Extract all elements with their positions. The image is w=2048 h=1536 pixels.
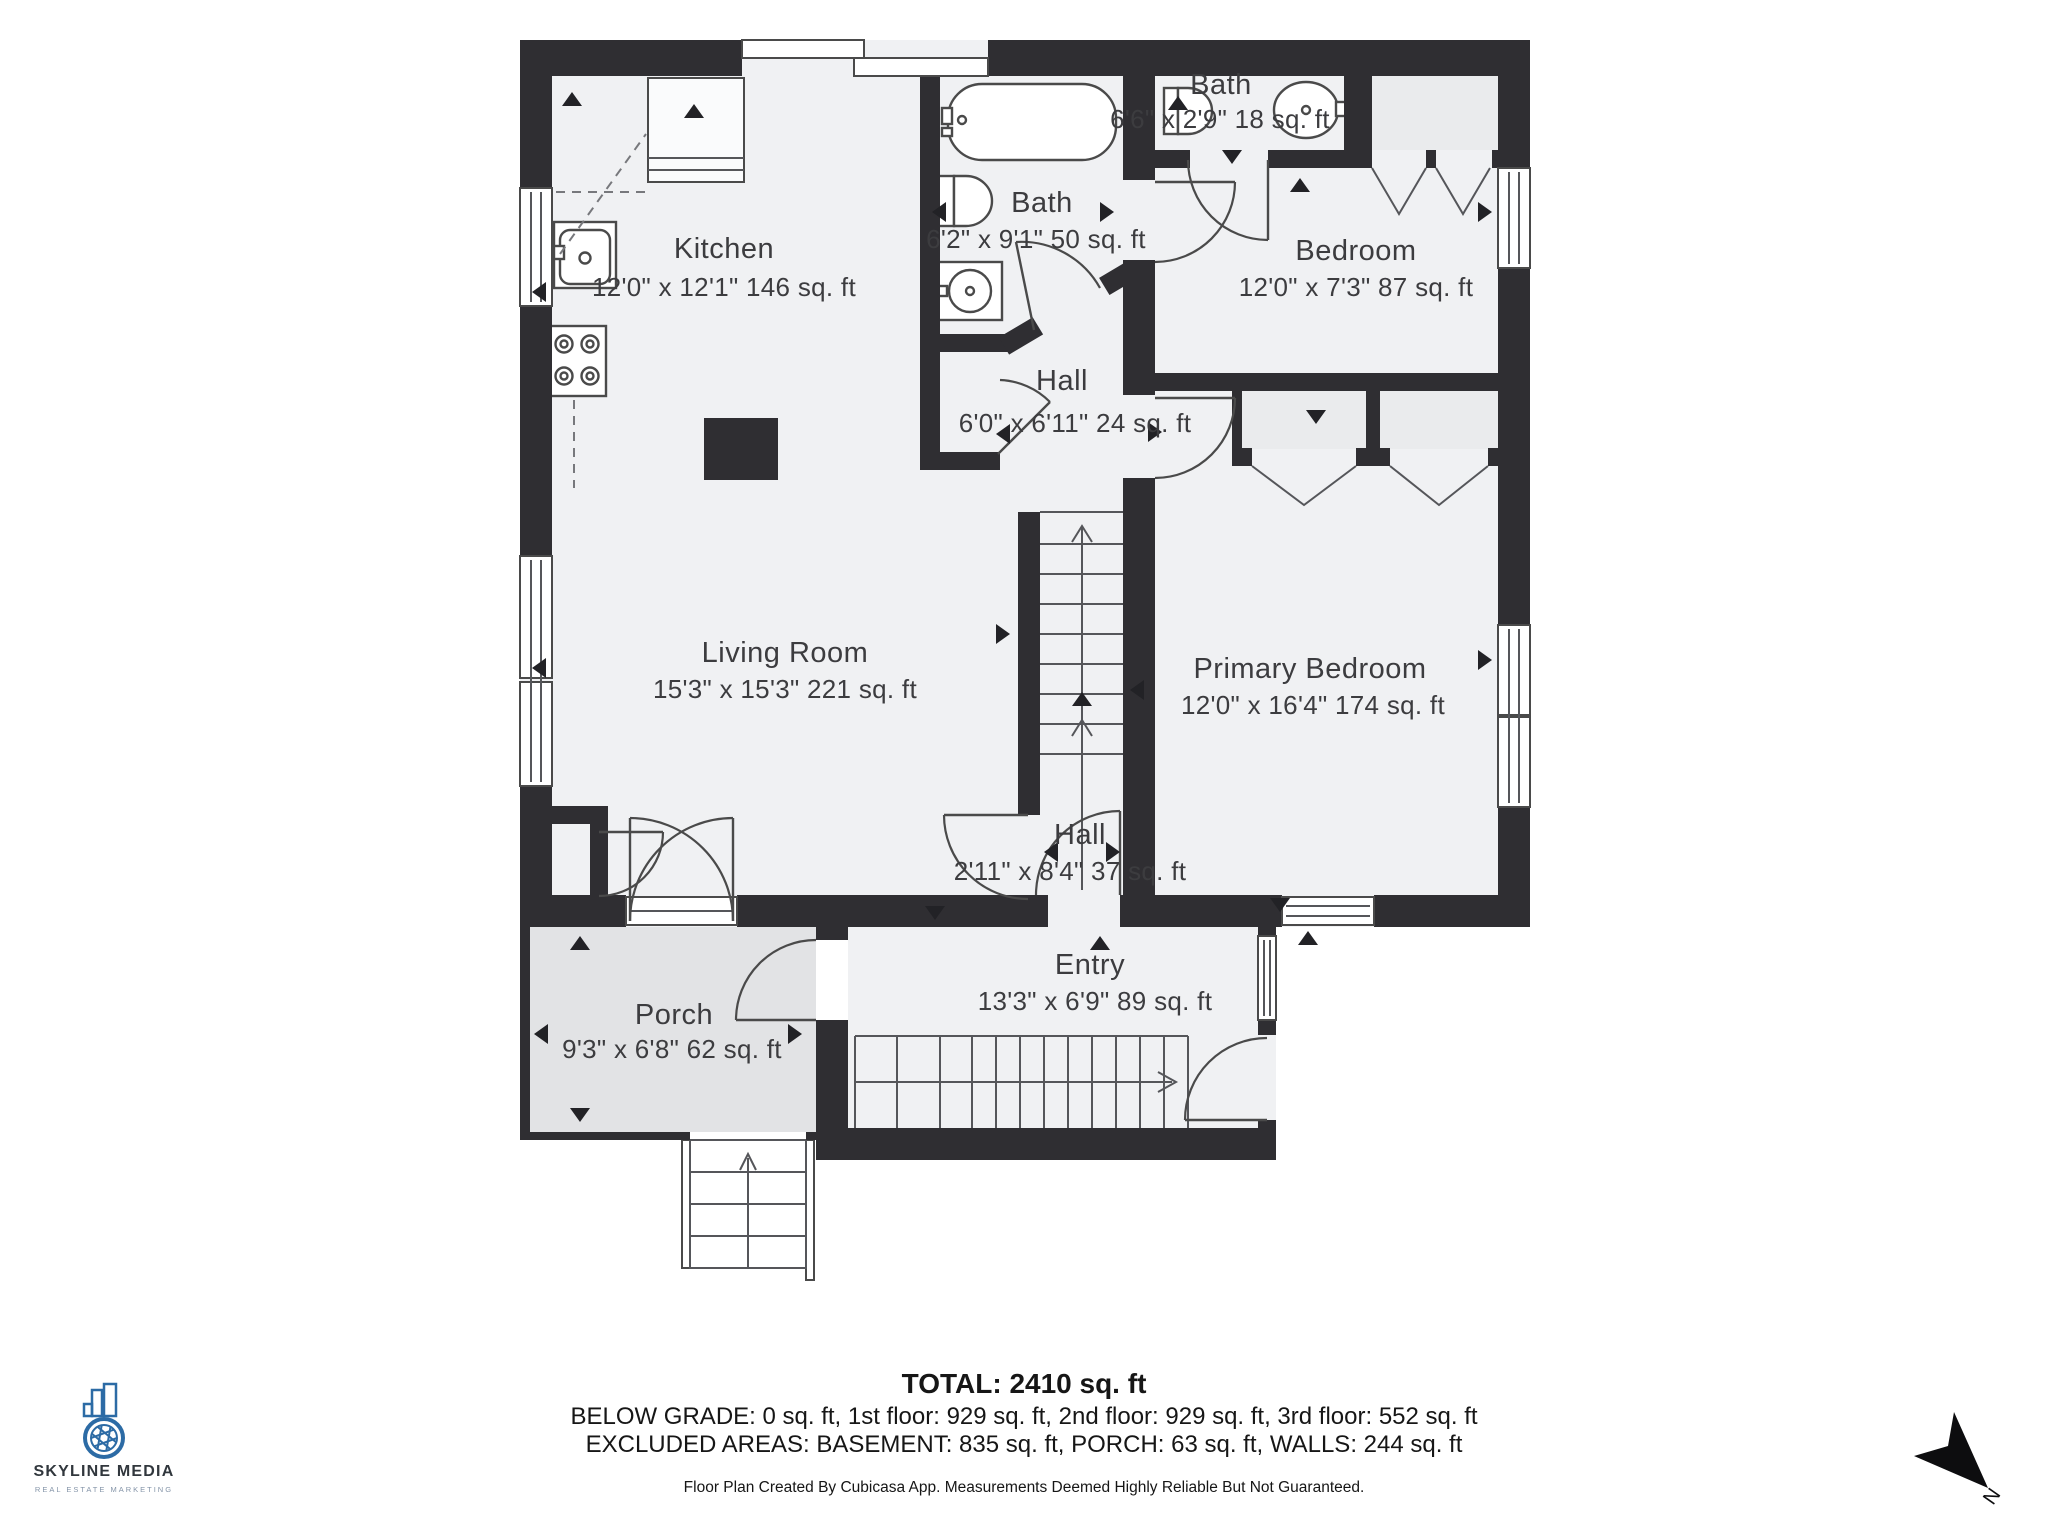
window-primary-b: [1498, 717, 1530, 807]
closet-top-right: [1372, 76, 1498, 150]
window-entry-side: [1258, 936, 1276, 1020]
room-label-bedroom: Bedroom: [1295, 235, 1416, 267]
compass-north-label: N: [1979, 1484, 2005, 1508]
floor-areas-text: BELOW GRADE: 0 sq. ft, 1st floor: 929 sq…: [570, 1403, 1477, 1430]
room-label-primary-bedroom: Primary Bedroom: [1193, 653, 1426, 685]
compass-north-icon: [1914, 1412, 1988, 1488]
room-dims-hall-lower: 2'11" x 8'4" 37 sq. ft: [954, 856, 1187, 886]
room-dims-primary-bedroom: 12'0" x 16'4" 174 sq. ft: [1181, 690, 1445, 720]
toilet-bath-main: [938, 176, 992, 226]
skyline-media-logo-icon: [84, 1384, 123, 1457]
window-primary-south: [1282, 897, 1374, 925]
primary-closet-b: [1380, 391, 1498, 449]
room-label-hall-lower: Hall: [1054, 819, 1106, 851]
room-label-entry: Entry: [1055, 949, 1125, 981]
window-living-b: [520, 682, 552, 786]
window-kitchen: [520, 188, 552, 306]
window-primary-a: [1498, 625, 1530, 715]
disclaimer-text: Floor Plan Created By Cubicasa App. Meas…: [684, 1479, 1365, 1496]
summary-footer: TOTAL: 2410 sq. ft BELOW GRADE: 0 sq. ft…: [570, 1368, 1477, 1496]
chimney-block: [704, 418, 778, 480]
room-dims-h all-upper: 6'0" x 6'11" 24 sq. ft: [959, 408, 1192, 438]
room-dims-porch: 9'3" x 6'8" 62 sq. ft: [562, 1034, 782, 1064]
floor-plan-page: Kitchen 12'0" x 12'1" 146 sq. ft Bath 6'…: [0, 0, 2048, 1536]
stove: [548, 326, 606, 396]
room-dims-entry: 13'3" x 6'9" 89 sq. ft: [978, 986, 1213, 1016]
window-top-b: [854, 58, 988, 76]
logo-company-name: SKYLINE MEDIA: [34, 1463, 175, 1480]
floor-plan-svg: Kitchen 12'0" x 12'1" 146 sq. ft Bath 6'…: [0, 0, 2048, 1536]
sink-bath-main: [936, 262, 1002, 320]
total-area-text: TOTAL: 2410 sq. ft: [902, 1368, 1147, 1399]
room-dims-bath-main: 6'2" x 9'1" 50 sq. ft: [926, 224, 1146, 254]
room-label-bath-small: Bath: [1190, 69, 1252, 101]
logo-tagline: REAL ESTATE MARKETING: [35, 1485, 173, 1494]
room-dims-bath-small: 6'6" x 2'9" 18 sq. ft: [1110, 104, 1330, 134]
window-top-a: [742, 40, 864, 58]
primary-closet-a: [1242, 391, 1366, 449]
room-label-porch: Porch: [635, 999, 713, 1031]
room-dims-living-room: 15'3" x 15'3" 221 sq. ft: [653, 674, 917, 704]
compass: N: [1914, 1412, 2005, 1509]
room-label-hall-upper: Hall: [1036, 365, 1088, 397]
window-living-a: [520, 556, 552, 678]
room-label-living-room: Living Room: [702, 637, 869, 669]
excluded-areas-text: EXCLUDED AREAS: BASEMENT: 835 sq. ft, PO…: [586, 1431, 1463, 1458]
room-dims-bedroom: 12'0" x 7'3" 87 sq. ft: [1239, 272, 1474, 302]
room-label-kitchen: Kitchen: [674, 233, 774, 265]
skyline-media-logo: SKYLINE MEDIA REAL ESTATE MARKETING: [34, 1384, 175, 1494]
window-bedroom: [1498, 168, 1530, 268]
room-label-bath-main: Bath: [1011, 187, 1073, 219]
porch-steps: [682, 1140, 814, 1280]
room-dims-kitchen: 12'0" x 12'1" 146 sq. ft: [592, 272, 856, 302]
bathtub: [942, 84, 1116, 160]
